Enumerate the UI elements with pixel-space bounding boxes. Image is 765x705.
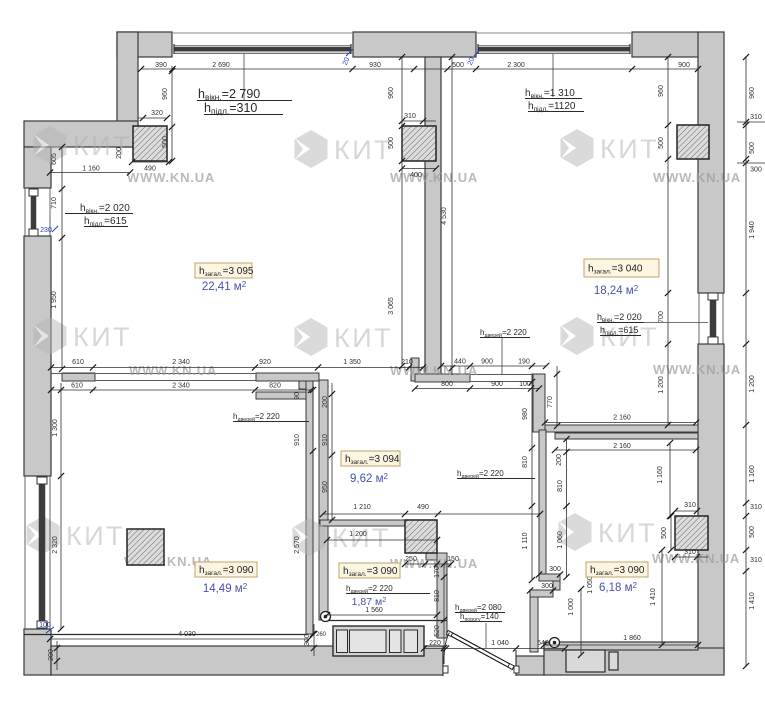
svg-text:980: 980 [522, 408, 529, 420]
svg-text:810: 810 [434, 590, 441, 602]
svg-text:КИТ: КИТ [334, 135, 393, 165]
svg-text:490: 490 [144, 166, 156, 173]
svg-text:2 300: 2 300 [507, 62, 525, 69]
svg-text:КИТ: КИТ [66, 521, 125, 551]
svg-text:2 340: 2 340 [172, 383, 190, 390]
svg-text:200: 200 [48, 649, 55, 661]
svg-text:1 410: 1 410 [650, 588, 657, 606]
svg-text:1 000: 1 000 [568, 598, 575, 616]
svg-text:22,41 м2: 22,41 м2 [202, 280, 247, 293]
svg-text:230: 230 [40, 227, 52, 234]
svg-text:2 160: 2 160 [613, 443, 631, 450]
svg-text:КИТ: КИТ [600, 134, 659, 164]
svg-text:4 030: 4 030 [178, 631, 196, 638]
svg-text:500: 500 [658, 137, 665, 149]
svg-text:200: 200 [556, 454, 563, 466]
svg-text:300: 300 [750, 167, 762, 174]
svg-text:500: 500 [452, 62, 464, 69]
svg-text:260: 260 [316, 632, 327, 638]
svg-text:930: 930 [369, 62, 381, 69]
svg-text:1 860: 1 860 [623, 635, 641, 642]
svg-text:520: 520 [434, 625, 441, 637]
svg-text:3 065: 3 065 [388, 297, 395, 315]
svg-text:900: 900 [481, 359, 493, 366]
svg-text:WWW.KN.UA: WWW.KN.UA [653, 362, 741, 377]
svg-text:КИТ: КИТ [334, 323, 393, 353]
svg-text:500: 500 [749, 526, 756, 538]
svg-text:WWW.KN.UA: WWW.KN.UA [127, 170, 215, 185]
svg-text:310: 310 [404, 113, 416, 120]
svg-text:910: 910 [322, 434, 329, 446]
svg-text:150: 150 [447, 556, 459, 563]
svg-text:440: 440 [454, 359, 466, 366]
svg-text:1 200: 1 200 [749, 375, 756, 393]
svg-text:500: 500 [162, 136, 169, 148]
svg-text:320: 320 [151, 110, 163, 117]
svg-text:200: 200 [116, 147, 123, 159]
svg-text:1 950: 1 950 [51, 291, 58, 309]
svg-text:960: 960 [162, 88, 169, 100]
svg-text:1 040: 1 040 [491, 640, 509, 647]
svg-text:900: 900 [678, 62, 690, 69]
svg-text:2 570: 2 570 [294, 536, 301, 554]
svg-text:1 060: 1 060 [557, 531, 564, 549]
svg-text:2 320: 2 320 [52, 536, 59, 554]
svg-text:810: 810 [522, 456, 529, 468]
svg-text:170: 170 [434, 566, 441, 578]
svg-text:960: 960 [749, 87, 756, 99]
svg-text:1 110: 1 110 [522, 532, 529, 549]
svg-text:1 160: 1 160 [657, 466, 664, 484]
svg-text:500: 500 [749, 142, 756, 154]
svg-text:490: 490 [417, 504, 429, 511]
svg-text:100: 100 [39, 622, 51, 629]
svg-text:190: 190 [518, 359, 530, 366]
svg-text:960: 960 [658, 85, 665, 97]
svg-text:770: 770 [547, 396, 554, 408]
svg-text:90: 90 [294, 392, 301, 400]
svg-text:300: 300 [541, 583, 553, 590]
svg-text:810: 810 [557, 480, 564, 492]
svg-text:9,62 м2: 9,62 м2 [350, 472, 388, 485]
svg-text:220: 220 [429, 640, 441, 647]
svg-text:18,24 м2: 18,24 м2 [594, 284, 639, 297]
svg-text:4 530: 4 530 [441, 207, 448, 225]
svg-text:605: 605 [51, 153, 58, 165]
svg-text:14,49 м2: 14,49 м2 [203, 582, 248, 595]
svg-text:950: 950 [322, 481, 329, 493]
svg-text:900: 900 [491, 381, 503, 388]
svg-text:390: 390 [155, 62, 167, 69]
svg-text:КИТ: КИТ [73, 322, 132, 352]
svg-text:WWW.KN.UA: WWW.KN.UA [653, 170, 741, 185]
svg-text:500: 500 [661, 527, 668, 539]
svg-text:250: 250 [405, 556, 417, 563]
svg-text:960: 960 [388, 87, 395, 99]
svg-text:310: 310 [684, 549, 696, 556]
svg-text:310: 310 [750, 557, 762, 564]
svg-text:300: 300 [549, 566, 561, 573]
svg-text:820: 820 [269, 383, 281, 390]
svg-text:710: 710 [51, 197, 58, 209]
svg-text:1 410: 1 410 [749, 592, 756, 610]
svg-text:310: 310 [684, 502, 696, 509]
svg-text:920: 920 [259, 359, 271, 366]
svg-text:1 210: 1 210 [353, 504, 371, 511]
svg-text:610: 610 [72, 359, 84, 366]
svg-text:1,87 м2: 1,87 м2 [352, 595, 387, 608]
svg-text:1 200: 1 200 [658, 376, 665, 394]
svg-text:КИТ: КИТ [73, 131, 132, 161]
svg-text:500: 500 [388, 137, 395, 149]
svg-text:310: 310 [750, 504, 762, 511]
svg-text:400: 400 [410, 172, 422, 179]
svg-text:2 340: 2 340 [172, 359, 190, 366]
svg-text:1 200: 1 200 [349, 531, 367, 538]
svg-text:2 690: 2 690 [212, 62, 230, 69]
svg-text:КИТ: КИТ [598, 518, 657, 548]
svg-text:300: 300 [304, 634, 311, 646]
svg-text:1 940: 1 940 [749, 221, 756, 239]
svg-text:700: 700 [658, 311, 665, 323]
svg-text:910: 910 [294, 434, 301, 446]
svg-text:1 350: 1 350 [343, 359, 361, 366]
svg-text:1 300: 1 300 [52, 419, 59, 437]
svg-text:6,18 м2: 6,18 м2 [599, 581, 637, 594]
svg-text:КИТ: КИТ [332, 523, 391, 553]
svg-text:WWW.KN.UA: WWW.KN.UA [390, 170, 478, 185]
svg-text:200: 200 [322, 396, 329, 408]
svg-text:1 050: 1 050 [587, 576, 594, 594]
svg-text:800: 800 [441, 381, 453, 388]
svg-text:1 560: 1 560 [365, 607, 383, 614]
svg-text:1 160: 1 160 [749, 465, 756, 483]
svg-text:2 160: 2 160 [613, 415, 631, 422]
svg-text:1 160: 1 160 [82, 166, 100, 173]
svg-text:310: 310 [750, 114, 762, 121]
svg-text:610: 610 [71, 383, 83, 390]
